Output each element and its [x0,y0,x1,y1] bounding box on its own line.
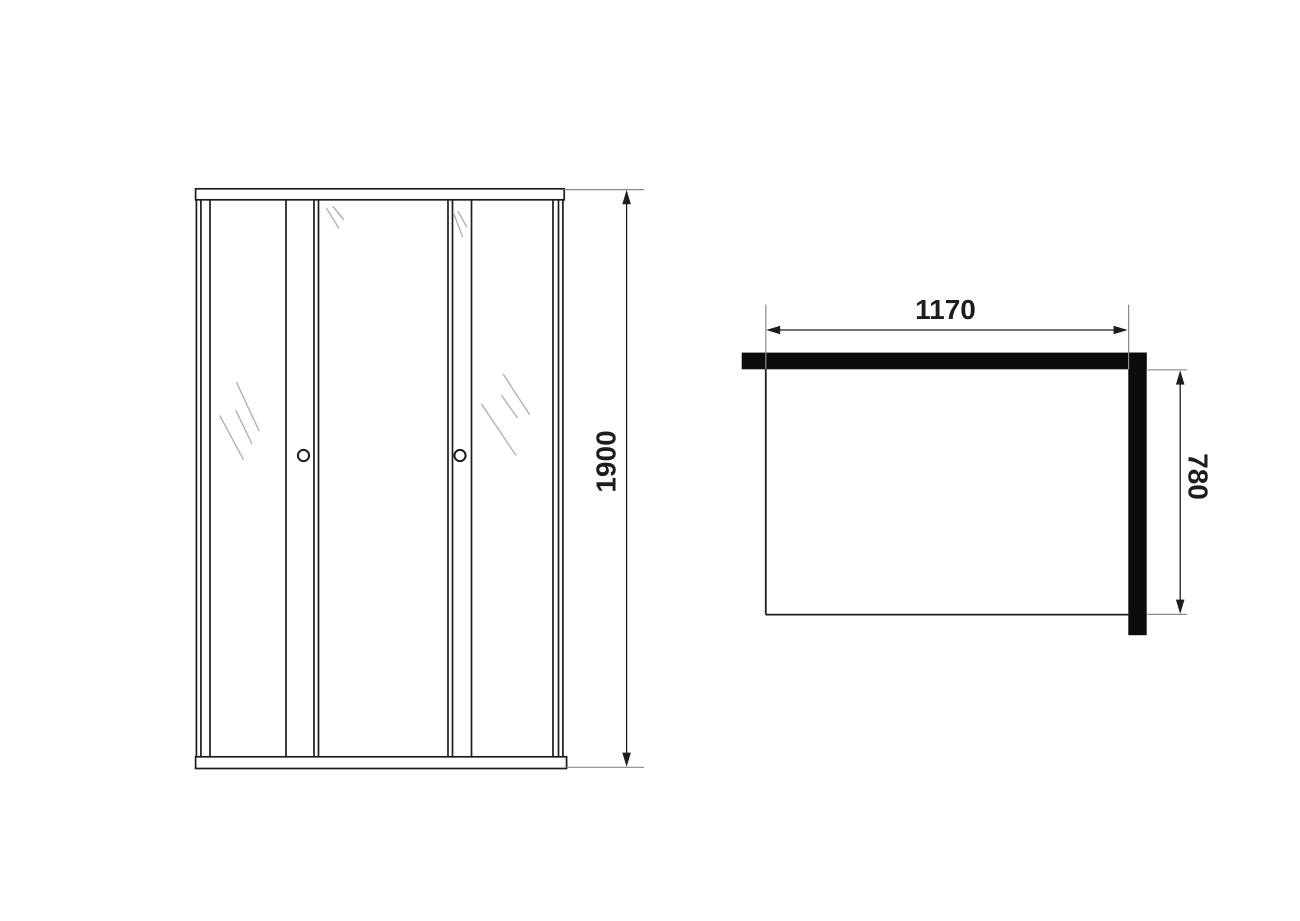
height-dimension: 1900 [564,190,644,768]
arrowhead-left-icon [766,326,780,335]
glass-shine-marks [220,207,529,460]
bottom-rail [196,757,567,769]
wall-profile-vertical [1128,353,1146,636]
arrowhead-right-icon [1114,326,1128,335]
plan-view: 1170 780 [742,294,1214,635]
width-dimension: 1170 [766,294,1127,334]
top-rail [196,189,565,200]
wall-profile-horizontal [742,353,1147,370]
door-knob-left [298,450,309,461]
width-dimension-label: 1170 [915,294,976,325]
shower-enclosure-dimension-diagram: 1900 1170 [0,0,1300,921]
arrowhead-down-icon [1176,600,1185,614]
depth-dimension-label: 780 [1183,453,1214,500]
height-dimension-label: 1900 [590,430,621,492]
arrowhead-down-icon [622,753,631,767]
front-view: 1900 [196,189,645,769]
frame-vertical-profiles [196,200,563,757]
door-knob-right [454,450,465,461]
arrowhead-up-icon [1176,370,1185,384]
technical-drawing-page: 1900 1170 [0,0,1300,921]
depth-dimension: 780 [1147,370,1213,615]
arrowhead-up-icon [622,190,631,204]
